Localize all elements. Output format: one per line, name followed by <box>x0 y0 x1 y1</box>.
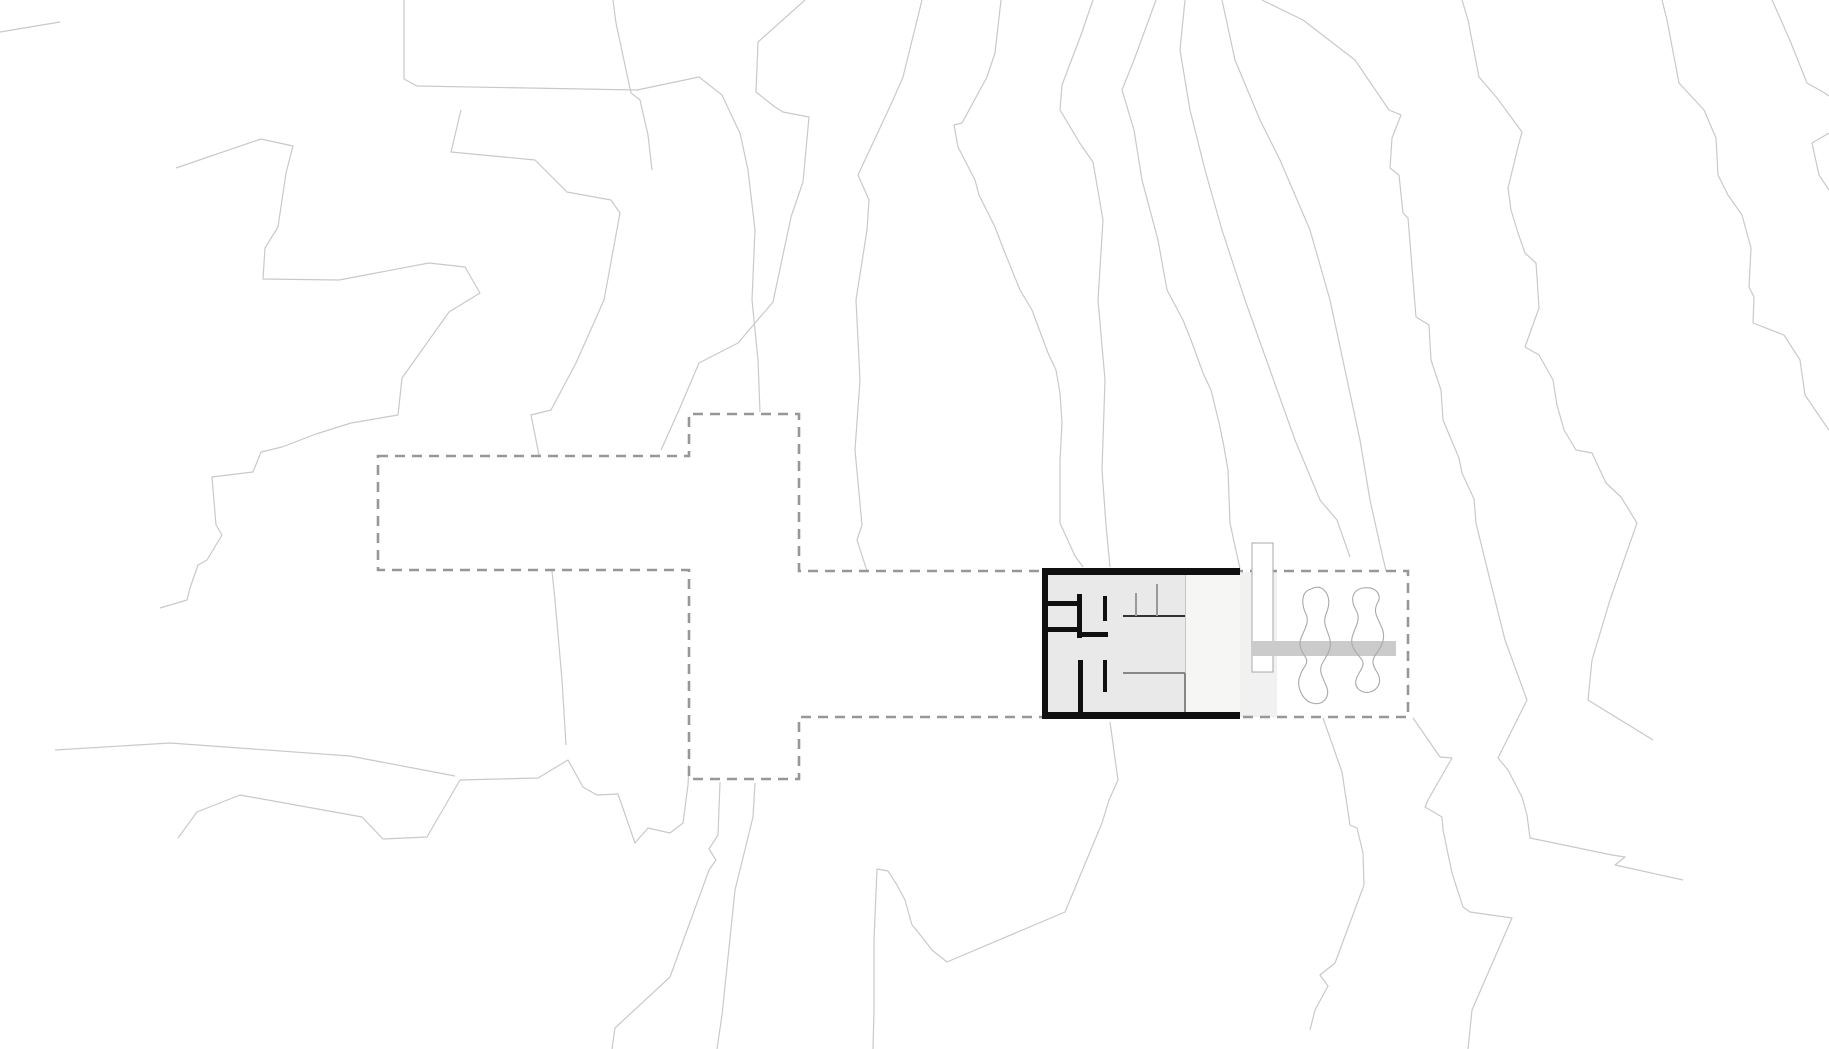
bridge-walkway <box>1252 641 1396 656</box>
contour-line <box>661 0 809 450</box>
contour-line <box>0 22 60 32</box>
island-line-h <box>1123 672 1186 674</box>
contour-line <box>954 0 1083 567</box>
counter-line <box>1123 615 1185 617</box>
floor-main <box>1045 572 1185 713</box>
floor-right <box>1185 572 1240 713</box>
partition-v2 <box>1103 596 1107 621</box>
site-plan-drawing <box>0 0 1829 1049</box>
contour-line <box>717 783 755 1049</box>
contour-line <box>1180 0 1350 557</box>
counter-tick-1 <box>1135 593 1137 616</box>
partition-v1 <box>1077 594 1082 638</box>
contour-line <box>1772 0 1829 96</box>
contour-line <box>613 0 652 170</box>
island-line-v <box>1184 674 1186 712</box>
contour-line <box>1122 0 1240 569</box>
contour-line <box>1310 718 1364 1030</box>
contour-line <box>855 0 922 571</box>
wall-top <box>1042 568 1240 575</box>
contour-line <box>873 722 1118 1049</box>
building-floor <box>1045 572 1240 713</box>
contour-line <box>1462 0 1653 740</box>
contour-lines <box>0 0 1829 1049</box>
partition-v3 <box>1078 660 1083 713</box>
counter-tick-2 <box>1156 584 1158 616</box>
contour-line <box>1812 133 1829 190</box>
site-plan-canvas <box>0 0 1829 1049</box>
contour-line <box>1413 718 1512 1049</box>
contour-line <box>1662 0 1829 430</box>
contour-line <box>1060 0 1110 567</box>
partition-h1 <box>1048 601 1078 606</box>
contour-line <box>1262 0 1683 880</box>
partition-v4 <box>1103 660 1107 692</box>
zone-divider <box>1185 575 1186 673</box>
wall-left <box>1042 568 1048 719</box>
partition-h3 <box>1077 632 1108 637</box>
contour-line <box>451 110 620 745</box>
wall-bottom <box>1042 712 1240 719</box>
partition-h2 <box>1048 627 1078 632</box>
contour-line <box>55 743 455 776</box>
